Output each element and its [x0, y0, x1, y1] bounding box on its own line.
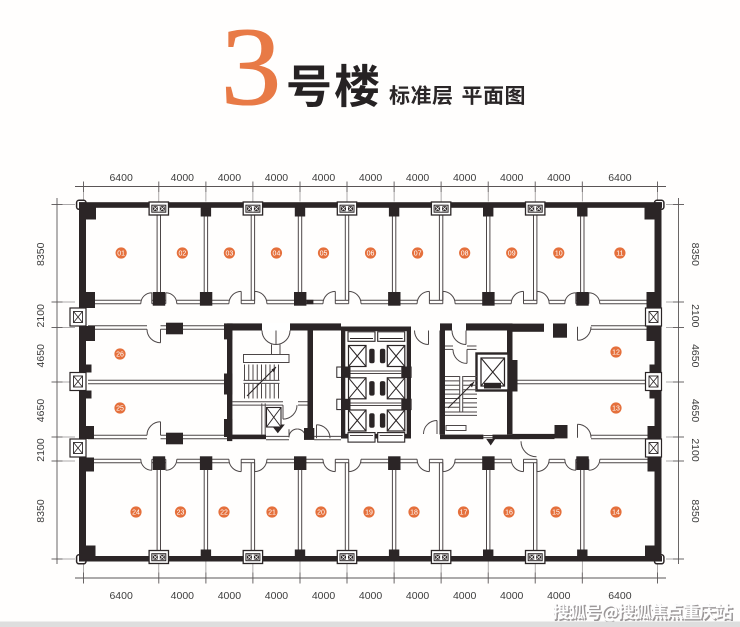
- svg-text:4000: 4000: [406, 590, 430, 602]
- svg-text:4000: 4000: [547, 172, 571, 184]
- svg-text:16: 16: [505, 509, 513, 516]
- svg-text:4650: 4650: [689, 399, 701, 423]
- svg-text:26: 26: [116, 351, 124, 358]
- svg-text:4000: 4000: [500, 172, 524, 184]
- svg-text:20: 20: [317, 509, 325, 516]
- svg-text:10: 10: [555, 250, 563, 257]
- svg-text:08: 08: [461, 250, 469, 257]
- svg-text:04: 04: [273, 250, 281, 257]
- svg-text:6400: 6400: [109, 590, 133, 602]
- svg-text:24: 24: [132, 509, 140, 516]
- svg-text:4000: 4000: [218, 172, 242, 184]
- svg-text:6400: 6400: [109, 172, 133, 184]
- svg-text:4000: 4000: [547, 590, 571, 602]
- svg-text:4000: 4000: [453, 590, 477, 602]
- svg-text:8350: 8350: [689, 243, 701, 267]
- svg-text:2100: 2100: [35, 304, 47, 328]
- svg-text:4000: 4000: [359, 590, 383, 602]
- svg-text:22: 22: [220, 509, 228, 516]
- svg-text:8350: 8350: [35, 499, 47, 523]
- svg-text:4000: 4000: [265, 172, 289, 184]
- svg-text:13: 13: [612, 405, 620, 412]
- svg-text:02: 02: [178, 250, 186, 257]
- svg-text:4000: 4000: [312, 590, 336, 602]
- svg-text:15: 15: [552, 509, 560, 516]
- svg-text:2100: 2100: [689, 438, 701, 462]
- svg-text:14: 14: [612, 509, 620, 516]
- svg-text:25: 25: [116, 405, 124, 412]
- svg-text:4000: 4000: [500, 590, 524, 602]
- svg-text:4000: 4000: [453, 172, 477, 184]
- svg-text:2100: 2100: [35, 438, 47, 462]
- svg-text:05: 05: [320, 250, 328, 257]
- svg-text:06: 06: [367, 250, 375, 257]
- svg-text:07: 07: [414, 250, 422, 257]
- svg-text:18: 18: [410, 509, 418, 516]
- svg-text:8350: 8350: [689, 499, 701, 523]
- svg-text:4000: 4000: [359, 172, 383, 184]
- svg-text:4000: 4000: [171, 172, 195, 184]
- svg-text:3: 3: [221, 6, 281, 128]
- svg-text:6400: 6400: [608, 590, 632, 602]
- svg-text:4650: 4650: [35, 344, 47, 368]
- svg-text:01: 01: [117, 250, 125, 257]
- svg-text:4650: 4650: [689, 344, 701, 368]
- svg-text:21: 21: [268, 509, 276, 516]
- svg-text:23: 23: [177, 509, 185, 516]
- svg-text:4000: 4000: [265, 590, 289, 602]
- svg-text:4000: 4000: [218, 590, 242, 602]
- svg-text:4000: 4000: [171, 590, 195, 602]
- svg-text:2100: 2100: [689, 304, 701, 328]
- svg-text:12: 12: [612, 349, 620, 356]
- svg-text:6400: 6400: [608, 172, 632, 184]
- svg-text:4650: 4650: [35, 399, 47, 423]
- svg-text:11: 11: [616, 250, 623, 257]
- svg-text:4000: 4000: [406, 172, 430, 184]
- svg-text:03: 03: [226, 250, 234, 257]
- svg-text:4000: 4000: [312, 172, 336, 184]
- svg-text:19: 19: [365, 509, 373, 516]
- svg-text:8350: 8350: [35, 242, 47, 266]
- svg-text:17: 17: [460, 509, 468, 516]
- svg-text:09: 09: [508, 250, 516, 257]
